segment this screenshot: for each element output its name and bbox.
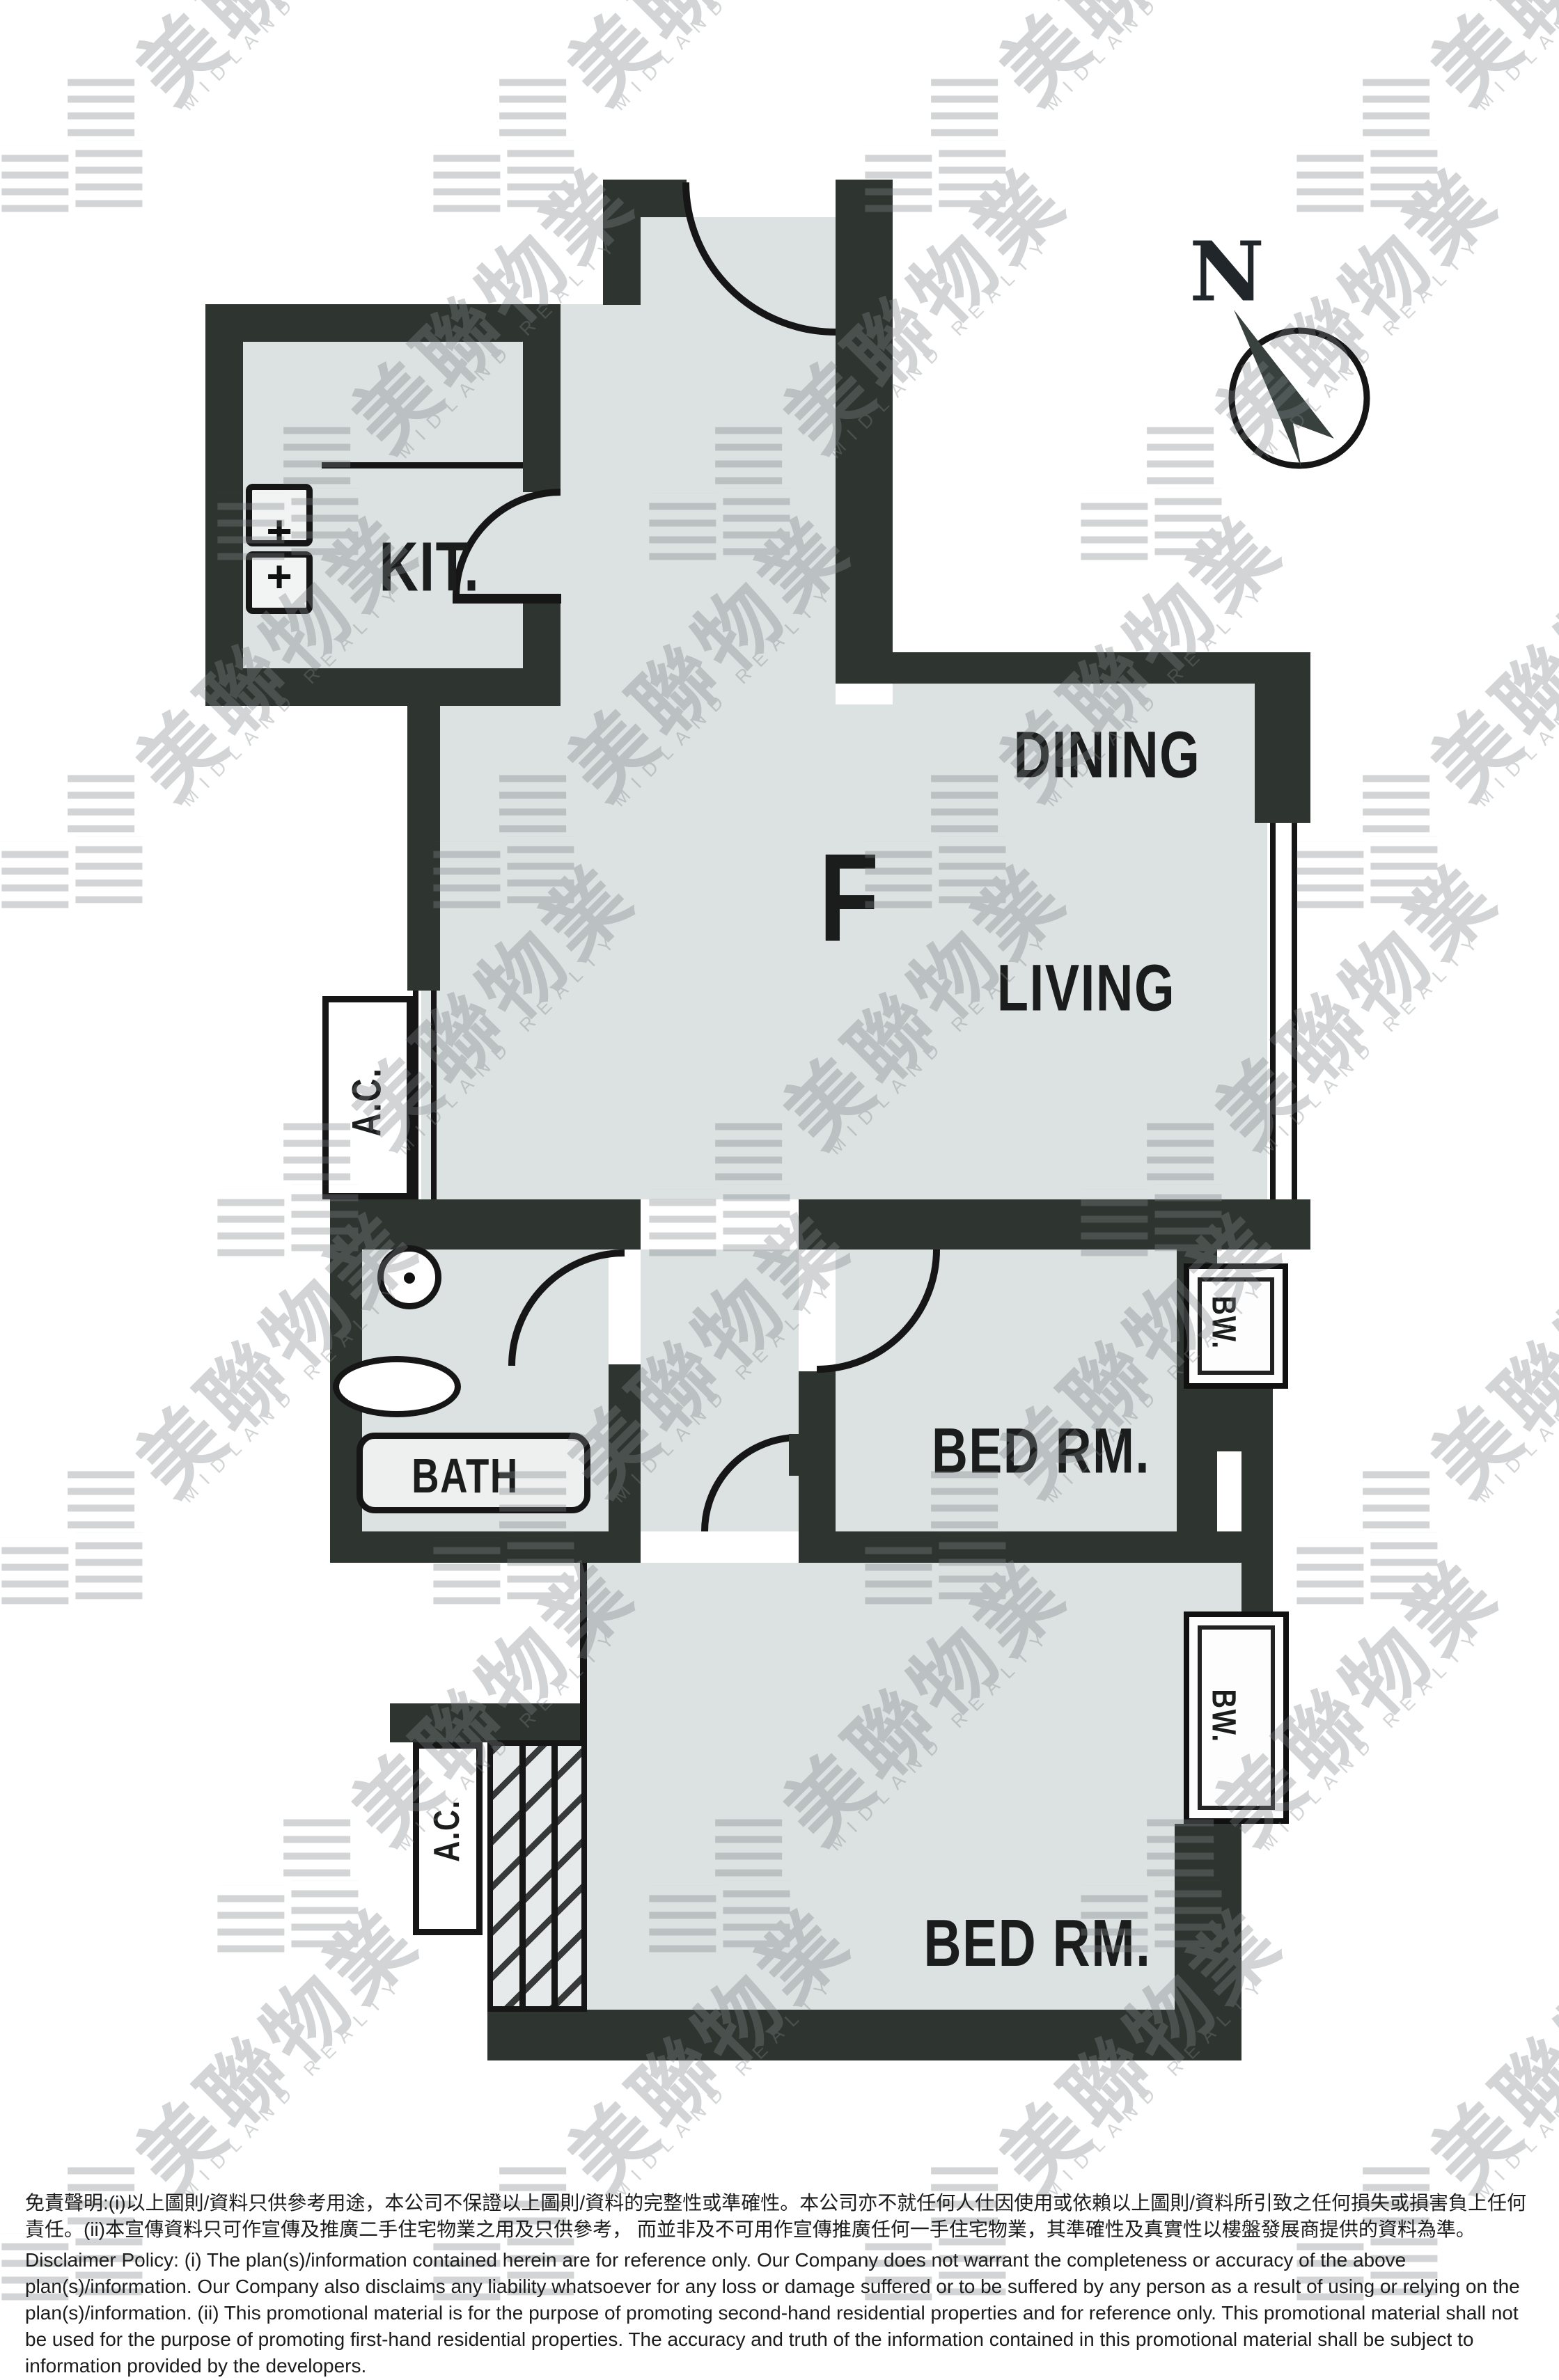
kitchen-right-wall-upper xyxy=(523,304,561,492)
dining-floor-strip xyxy=(893,684,1267,704)
disclaimer-chinese: 免責聲明:(i)以上圖則/資料只供參考用途，本公司不保證以上圖則/資料的完整性或… xyxy=(25,2190,1537,2243)
disclaimer-block: 免責聲明:(i)以上圖則/資料只供參考用途，本公司不保證以上圖則/資料的完整性或… xyxy=(25,2190,1537,2380)
right-wall-below-bw2 xyxy=(1175,1824,1241,2026)
floor-plan: + + N KIT. DINING F LIVING BED RM. BED R… xyxy=(0,0,1559,2331)
louver-divider xyxy=(519,1746,526,2006)
sink-cross-icon: + xyxy=(266,551,292,602)
bedroom2-left-thin-wall xyxy=(580,1563,587,1742)
dining-corner-pillar xyxy=(1255,652,1310,823)
dining-right-window-line-outer xyxy=(1270,823,1276,1199)
living-label: LIVING xyxy=(997,951,1175,1027)
ac2-label: A.C. xyxy=(426,1799,468,1862)
bedroom1-top-wall xyxy=(799,1199,1310,1250)
kitchen-counter-line xyxy=(322,462,523,468)
disclaimer-english: Disclaimer Policy: (i) The plan(s)/infor… xyxy=(25,2247,1537,2379)
right-wall-stub-bw2 xyxy=(1241,1563,1272,1611)
dining-right-window-line-inner xyxy=(1292,823,1297,1199)
bath-label: BATH xyxy=(412,1448,519,1504)
kitchen-left-wall xyxy=(205,304,243,706)
hall-floor xyxy=(641,1250,799,1531)
ac2-top-wall xyxy=(390,1703,587,1742)
bedroom2-bottom-wall xyxy=(487,2010,1241,2060)
bedroom1-bottom-wall xyxy=(799,1531,1272,1563)
bedroom1-label: BED RM. xyxy=(932,1415,1150,1488)
unit-letter-label: F xyxy=(819,826,879,970)
kitchen-doorway-floor xyxy=(523,492,561,599)
bw2-label: BW. xyxy=(1205,1689,1243,1742)
compass-north-label: N xyxy=(1189,223,1264,320)
compass-circle xyxy=(1232,331,1367,466)
louver-divider xyxy=(551,1746,558,2006)
entry-left-wall xyxy=(603,180,641,305)
sink-cross-icon: + xyxy=(266,505,292,557)
right-corner-under-bw1 xyxy=(1217,1385,1273,1451)
bedroom1-left-wall xyxy=(799,1371,836,1531)
toilet xyxy=(333,1356,461,1417)
living-left-window-line-outer xyxy=(413,991,418,1199)
north-arrow-icon xyxy=(1234,310,1334,468)
bedroom2-label: BED RM. xyxy=(923,1905,1151,1982)
kitchen-label: KIT. xyxy=(379,528,480,608)
kitchen-bottom-wall xyxy=(205,668,561,706)
dining-top-wall xyxy=(893,652,1255,684)
basin-drain-dot xyxy=(404,1272,415,1284)
entry-corridor-floor-lower xyxy=(561,304,836,704)
living-left-window-line-inner xyxy=(431,991,437,1199)
living-left-wall xyxy=(407,706,440,991)
dining-label: DINING xyxy=(1014,718,1201,794)
entry-corridor-floor xyxy=(641,217,836,305)
bathroom-bottom-wall xyxy=(330,1531,641,1563)
bathroom-top-wall xyxy=(330,1199,641,1250)
kitchen-top-wall xyxy=(205,304,561,342)
louver-window xyxy=(487,1740,587,2012)
ac1-label: A.C. xyxy=(344,1067,391,1136)
bedroom1-floor xyxy=(836,1250,1177,1531)
corridor-right-wall xyxy=(836,180,893,684)
bw1-label: BW. xyxy=(1205,1295,1243,1349)
kitchen-right-wall-lower xyxy=(523,599,561,706)
